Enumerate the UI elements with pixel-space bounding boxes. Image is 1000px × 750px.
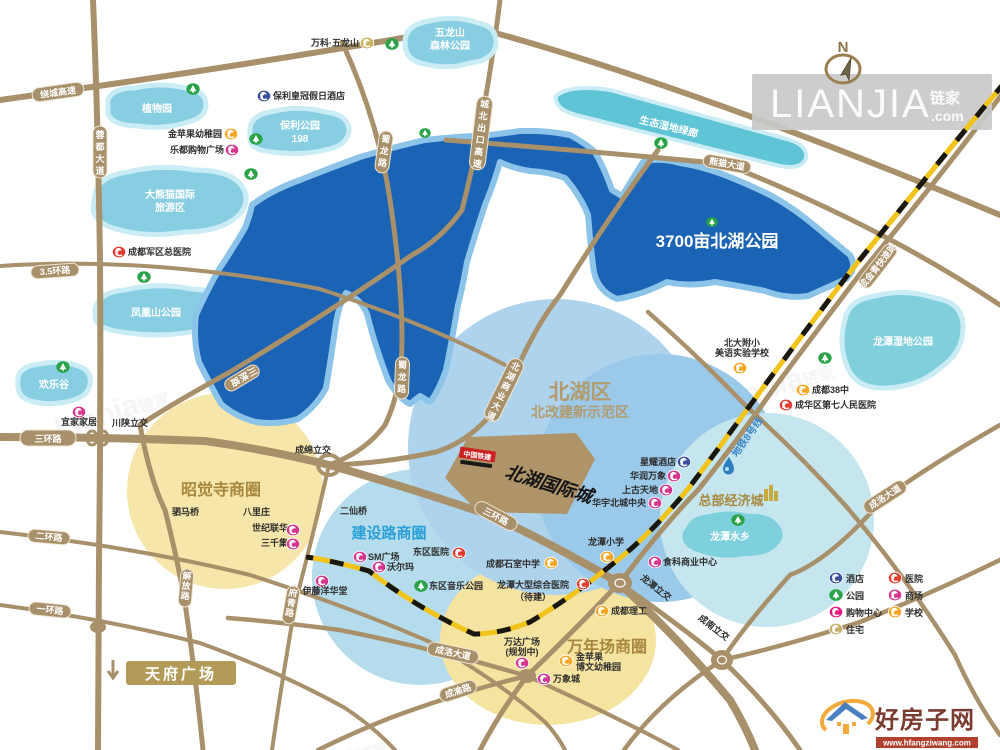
svg-text:植物园: 植物园 [141,102,172,115]
svg-text:3.5环路: 3.5环路 [39,264,71,277]
svg-text:万象城: 万象城 [552,673,580,684]
svg-text:东区医院: 东区医院 [413,546,449,557]
svg-text:保利公园: 保利公园 [279,119,320,132]
svg-text:金苹果: 金苹果 [575,651,604,662]
svg-text:成华区第七人民医院: 成华区第七人民医院 [795,399,876,410]
svg-text:成都石室中学: 成都石室中学 [486,558,540,569]
svg-text:宜家家居: 宜家家居 [61,416,97,427]
svg-text:欢乐谷: 欢乐谷 [38,378,70,391]
svg-text:保利皇冠假日酒店: 保利皇冠假日酒店 [272,90,345,101]
svg-text:住宅: 住宅 [846,624,864,635]
svg-text:昭觉寺商圈: 昭觉寺商圈 [181,480,261,499]
svg-text:N: N [838,39,849,56]
svg-text:酒店: 酒店 [846,573,864,584]
svg-text:北改建新示范区: 北改建新示范区 [531,404,629,420]
svg-text:LIANJIA: LIANJIA [770,82,931,126]
svg-text:凤凰山公园: 凤凰山公园 [131,306,181,319]
svg-text:学校: 学校 [905,607,924,618]
svg-text:建设路商圈: 建设路商圈 [351,524,426,542]
svg-text:乐都购物广场: 乐都购物广场 [170,144,224,155]
svg-text:华宇北城中央: 华宇北城中央 [592,497,647,508]
svg-text:驷马桥: 驷马桥 [172,506,200,517]
svg-text:公园: 公园 [846,591,864,601]
svg-text:博文幼稚园: 博文幼稚园 [576,661,621,672]
svg-text:美语实验学校: 美语实验学校 [715,347,770,358]
svg-text:总部经济城: 总部经济城 [698,493,763,508]
svg-text:东区音乐公园: 东区音乐公园 [429,580,483,591]
svg-text:（待建）: （待建） [515,591,551,602]
svg-text:五龙山: 五龙山 [435,26,465,39]
svg-text:3700亩北湖公园: 3700亩北湖公园 [656,231,779,251]
svg-text:成都理工: 成都理工 [611,605,647,616]
svg-text:成绵立交: 成绵立交 [295,444,331,455]
svg-text:星耀酒店: 星耀酒店 [640,456,676,467]
svg-text:二仙桥: 二仙桥 [340,505,368,516]
svg-text:.com: .com [931,108,964,124]
svg-text:龙潭小学: 龙潭小学 [587,536,624,547]
svg-text:上古天地: 上古天地 [622,484,658,495]
svg-text:北大附小: 北大附小 [724,337,760,348]
svg-text:大熊猫国际: 大熊猫国际 [145,188,195,201]
svg-text:八里庄: 八里庄 [242,506,270,517]
svg-text:龙潭湿地公园: 龙潭湿地公园 [872,335,933,348]
svg-text:SM广场: SM广场 [368,551,400,562]
svg-text:北湖区: 北湖区 [549,381,612,404]
svg-text:www.hfangziwang.com: www.hfangziwang.com [882,739,971,748]
svg-text:医院: 医院 [905,573,923,584]
svg-text:198: 198 [292,134,309,145]
svg-text:川陕立交: 川陕立交 [111,417,148,428]
svg-text:天府广场: 天府广场 [145,665,217,683]
svg-text:成都军区总医院: 成都军区总医院 [128,246,191,257]
svg-text:龙潭水乡: 龙潭水乡 [709,530,750,543]
svg-text:(规划中): (规划中) [506,646,539,657]
svg-text:购物中心: 购物中心 [846,607,882,618]
svg-text:世纪联华: 世纪联华 [252,522,288,533]
svg-text:三环路: 三环路 [34,433,62,444]
svg-text:华润万象: 华润万象 [630,470,666,481]
svg-text:金苹果幼稚园: 金苹果幼稚园 [167,128,222,139]
svg-text:链家: 链家 [930,89,960,107]
svg-text:龙潭大型综合医院: 龙潭大型综合医院 [496,579,569,590]
svg-text:食科商业中心: 食科商业中心 [662,556,717,567]
svg-text:伊藤洋华堂: 伊藤洋华堂 [301,585,347,596]
svg-text:万科·五龙山: 万科·五龙山 [310,37,359,48]
svg-text:万达广场: 万达广场 [503,636,540,647]
svg-text:成都38中: 成都38中 [812,384,849,395]
svg-text:森林公园: 森林公园 [429,39,470,52]
svg-text:商场: 商场 [905,590,923,601]
svg-text:好房子网: 好房子网 [874,706,975,734]
svg-text:沃尔玛: 沃尔玛 [387,561,414,572]
svg-text:三千集: 三千集 [261,537,289,548]
svg-text:旅游区: 旅游区 [155,201,185,214]
